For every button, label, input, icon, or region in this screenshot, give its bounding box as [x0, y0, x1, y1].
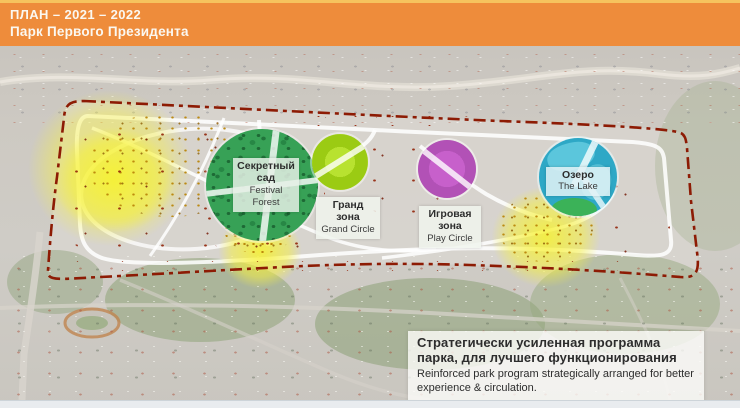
- path-through-play: [418, 144, 476, 194]
- zone-label-play-circle: Игровая зона Play Circle: [419, 206, 481, 248]
- zone-name-ru: сад: [235, 172, 297, 184]
- slide-bottom-margin: [0, 400, 740, 408]
- zone-label-grand-circle: Гранд зона Grand Circle: [316, 197, 380, 239]
- zone-name-ru: Игровая: [421, 208, 479, 220]
- park-name: Парк Первого Президента: [10, 24, 740, 39]
- zone-name-en: Festival Forest: [235, 185, 297, 209]
- zone-name-en: Play Circle: [421, 233, 479, 245]
- path-through-grand: [312, 139, 368, 182]
- zone-circle-play-circle: [418, 140, 476, 198]
- zone-name-en: Grand Circle: [318, 224, 378, 236]
- zone-label-festival-forest: Секретный сад Festival Forest: [233, 158, 299, 212]
- slide-header: ПЛАН – 2021 – 2022 Парк Первого Президен…: [0, 0, 740, 46]
- zone-name-ru: зона: [421, 220, 479, 232]
- strategy-body-en: Reinforced park program strategically ar…: [417, 367, 695, 396]
- zone-label-the-lake: Озеро The Lake: [546, 167, 610, 196]
- zone-name-ru: Озеро: [548, 169, 608, 181]
- plan-title: ПЛАН – 2021 – 2022: [10, 7, 740, 22]
- lake-green-shore: [551, 198, 597, 216]
- zone-name-en: The Lake: [548, 181, 608, 193]
- strategy-info-box: Стратегически усиленная программа парка,…: [408, 331, 704, 400]
- zone-name-ru: Секретный: [235, 160, 297, 172]
- park-plan-map: Секретный сад Festival Forest Гранд зона…: [0, 46, 740, 400]
- zone-name-ru: зона: [318, 211, 378, 223]
- zone-circle-grand-circle: [312, 134, 368, 190]
- slide: Секретный сад Festival Forest Гранд зона…: [0, 0, 740, 408]
- strategy-title-ru: Стратегически усиленная программа парка,…: [417, 336, 695, 366]
- zone-name-ru: Гранд: [318, 199, 378, 211]
